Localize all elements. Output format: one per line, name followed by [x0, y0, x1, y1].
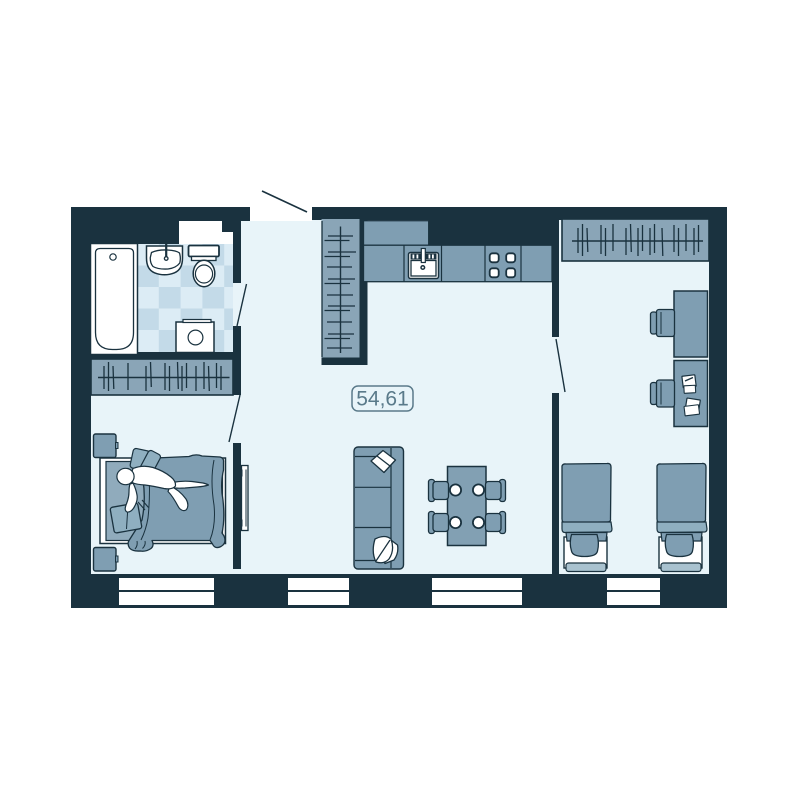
svg-text:54,61: 54,61 [356, 388, 409, 411]
